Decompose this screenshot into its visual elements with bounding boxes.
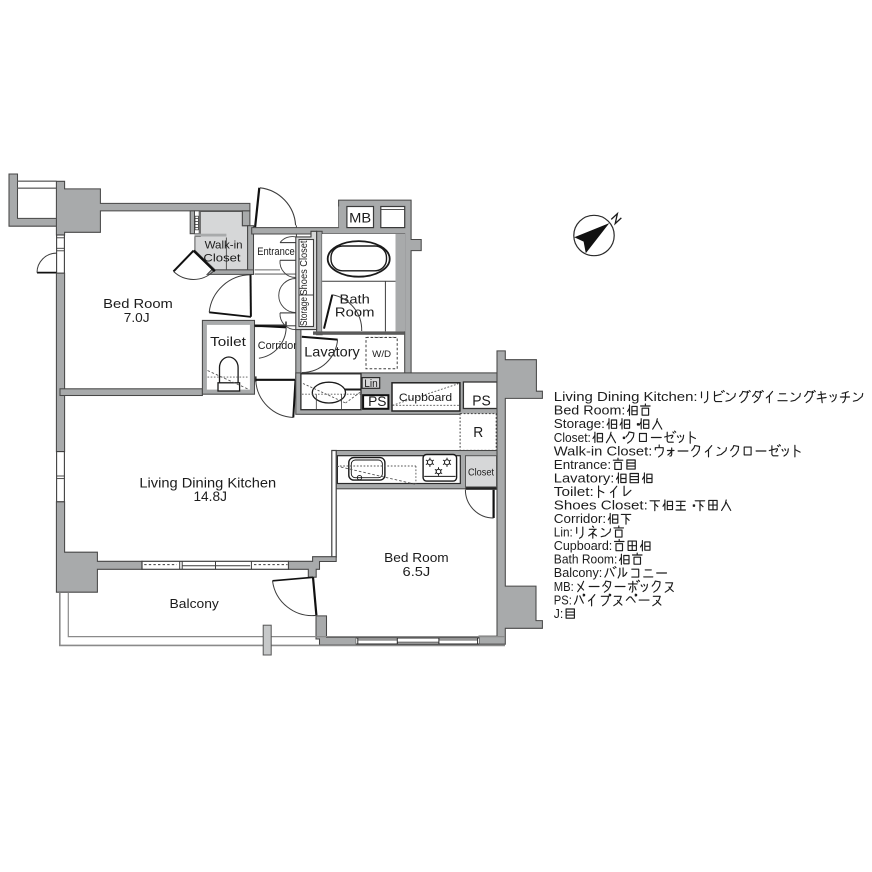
svg-text:MB: MB bbox=[349, 210, 371, 225]
svg-text:Cupboard: Cupboard bbox=[399, 392, 452, 404]
svg-text:7.0J: 7.0J bbox=[124, 310, 150, 325]
svg-text:Bed Room: Bed Room bbox=[103, 296, 173, 311]
svg-text:J:: J: bbox=[554, 606, 564, 621]
svg-text:PS: PS bbox=[472, 393, 491, 409]
svg-text:6.5J: 6.5J bbox=[403, 564, 431, 579]
svg-text:Entrance: Entrance bbox=[257, 246, 295, 258]
svg-text:Room: Room bbox=[335, 304, 375, 319]
svg-text:Storage: Storage bbox=[299, 297, 310, 326]
svg-text:Corridor: Corridor bbox=[258, 340, 297, 352]
svg-text:Shoes Closet: Shoes Closet bbox=[299, 240, 310, 295]
svg-text:Bed Room: Bed Room bbox=[384, 550, 449, 565]
svg-text:Closet: Closet bbox=[203, 253, 241, 265]
svg-text:Walk-in: Walk-in bbox=[205, 240, 243, 252]
svg-text:Lin: Lin bbox=[364, 378, 378, 390]
svg-text:W/D: W/D bbox=[372, 349, 392, 359]
svg-text:Toilet: Toilet bbox=[210, 334, 246, 349]
svg-text:Closet: Closet bbox=[468, 467, 494, 478]
svg-text:14.8J: 14.8J bbox=[193, 489, 227, 504]
svg-text:Lavatory: Lavatory bbox=[304, 344, 360, 360]
svg-text:Balcony: Balcony bbox=[170, 597, 220, 611]
svg-text:R: R bbox=[473, 424, 483, 441]
svg-text:PS: PS bbox=[368, 393, 386, 409]
